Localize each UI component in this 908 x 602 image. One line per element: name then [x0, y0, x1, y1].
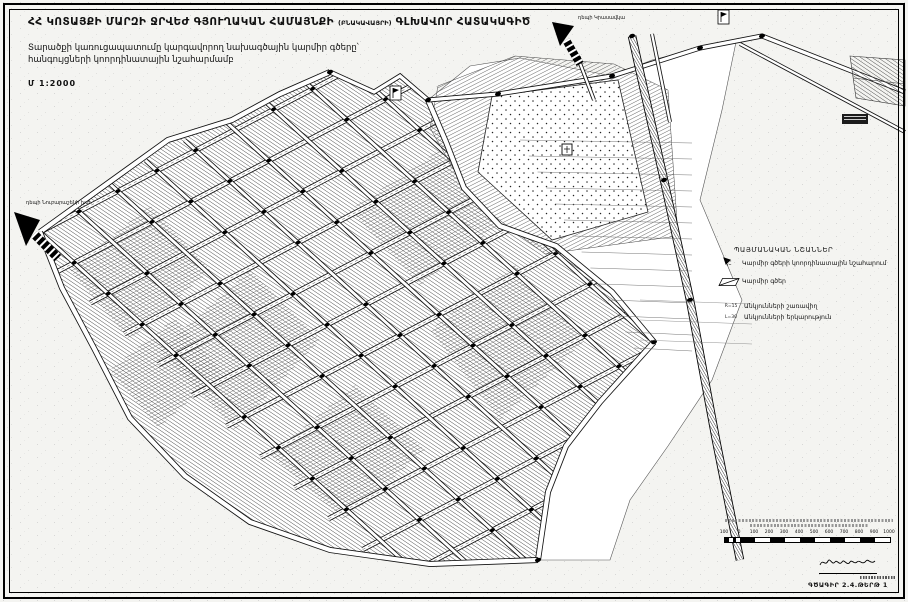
scalebar-segment	[800, 538, 815, 542]
legend: ՊԱՅՄԱՆԱԿԱՆ ՆՇԱՆՆԵՐ x= y= Կարմիր գծերի կո…	[716, 246, 901, 326]
scanned-master-plan-page: ՀՀ ԿՈՏԱՅՔԻ ՄԱՐԶԻ ՋՐՎԵԺ ԳՅՈՒՂԱԿԱՆ ՀԱՄԱՅՆՔ…	[0, 0, 908, 602]
scalebar-segment	[830, 538, 845, 542]
map-subtitle: Տարածքի կառուցապատումը կարգավորող նախագծ…	[28, 42, 448, 67]
map-title-main: ՀՀ ԿՈՏԱՅՔԻ ՄԱՐԶԻ ՋՐՎԵԺ ԳՅՈՒՂԱԿԱՆ ՀԱՄԱՅՆՔ…	[28, 16, 334, 28]
scalebar-segment	[755, 538, 770, 542]
signature-underline	[819, 573, 877, 574]
scalebar-note-line1	[725, 519, 893, 522]
scalebar-tick: 1000	[879, 530, 899, 535]
scalebar-segment	[875, 538, 890, 542]
legend-item-coordinates: x= y= Կարմիր գծերի կոորդինատային նշահարո…	[716, 259, 901, 268]
coordinate-y-sample: y=	[717, 263, 740, 267]
map-header: ՀՀ ԿՈՏԱՅՔԻ ՄԱՐԶԻ ՋՐՎԵԺ ԳՅՈՒՂԱԿԱՆ ՀԱՄԱՅՆՔ…	[28, 16, 588, 88]
map-title: ՀՀ ԿՈՏԱՅՔԻ ՄԱՐԶԻ ՋՐՎԵԺ ԳՅՈՒՂԱԿԱՆ ՀԱՄԱՅՆՔ…	[28, 16, 588, 28]
scalebar-note-line2	[750, 524, 868, 527]
legend-title: ՊԱՅՄԱՆԱԿԱՆ ՆՇԱՆՆԵՐ	[734, 246, 901, 254]
signature-caption-strip	[860, 576, 896, 579]
scalebar-bar	[724, 537, 891, 543]
map-title-tail: ԳԼԽԱՎՈՐ ՀԱՏԱԿԱԳԻԾ	[396, 16, 531, 28]
scalebar: 10001002003004005006007008009001000	[714, 519, 904, 543]
scalebar-segment	[845, 538, 860, 542]
scale-label: Մ 1:2000	[28, 79, 588, 88]
map-title-paren: (ԲՆԱԿԱՎԱՅՐԻ)	[338, 19, 392, 27]
legend-label-length: Անկյունների երկարություն	[744, 314, 832, 321]
legend-item-radius: R=15 Անկյունների շառավիղ	[716, 303, 901, 310]
coordinate-label-icon: x= y=	[717, 259, 740, 267]
scalebar-segment	[770, 538, 785, 542]
signature-block: ԳԾԱԳԻՐ 2.4.ԹԵՐԹ 1	[796, 554, 900, 589]
legend-label-red-lines: Կարմիր գծեր	[742, 278, 786, 285]
scalebar-tick-labels: 10001002003004005006007008009001000	[714, 530, 904, 537]
scalebar-segment	[785, 538, 800, 542]
legend-label-coordinates: Կարմիր գծերի կոորդինատային նշահարում	[742, 260, 887, 267]
legend-label-radius: Անկյունների շառավիղ	[744, 303, 817, 310]
legend-item-red-lines: Կարմիր գծեր	[716, 272, 901, 291]
legend-item-length: L=30 Անկյունների երկարություն	[716, 314, 901, 321]
drawing-sheet-label: ԳԾԱԳԻՐ 2.4.ԹԵՐԹ 1	[796, 581, 900, 589]
radius-icon: R=15	[716, 304, 744, 309]
length-icon: L=30	[716, 315, 744, 320]
road-destination-label-west: դեպի Նուբարաշենի խ.ճ.	[26, 200, 92, 206]
map-subtitle-line2: հանգույցների կոորդինատային նշահարմամբ	[28, 54, 448, 66]
road-destination-label-north: դեպի Կրասավկա	[578, 15, 625, 21]
small-stamp-box	[842, 114, 868, 124]
red-line-icon	[716, 272, 742, 291]
handwritten-signature	[817, 556, 879, 569]
scalebar-segment	[740, 538, 755, 542]
scalebar-segment	[815, 538, 830, 542]
map-subtitle-line1: Տարածքի կառուցապատումը կարգավորող նախագծ…	[28, 42, 448, 54]
scalebar-segment	[860, 538, 875, 542]
